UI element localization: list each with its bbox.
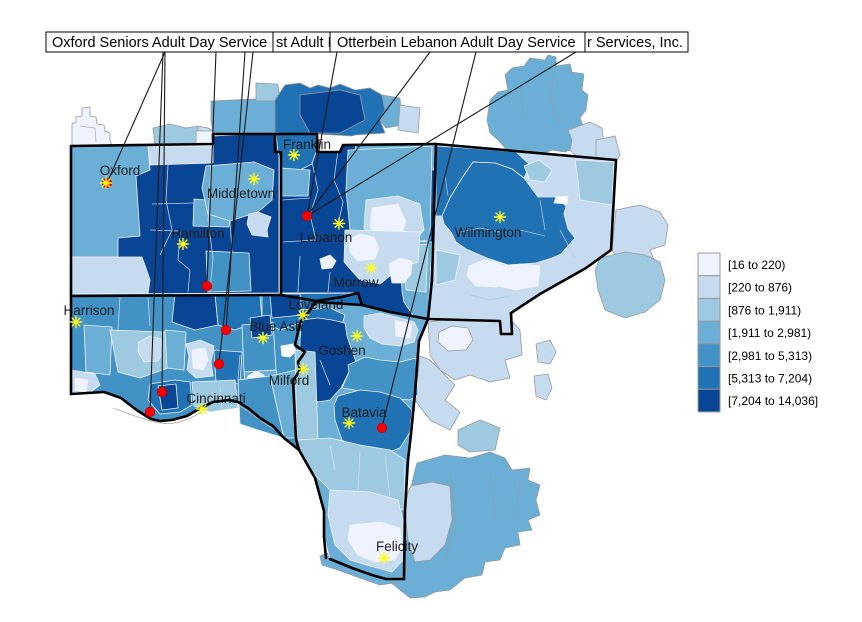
svg-text:Lebanon: Lebanon [300, 230, 353, 245]
svg-text:Franklin: Franklin [283, 137, 331, 152]
svg-text:Cincinnati: Cincinnati [186, 391, 245, 406]
svg-text:Goshen: Goshen [318, 343, 365, 358]
svg-text:Felicity: Felicity [376, 539, 418, 554]
svg-text:Hamilton: Hamilton [171, 226, 224, 241]
svg-text:Oxford Seniors Adult Day Servi: Oxford Seniors Adult Day Service [52, 35, 267, 51]
svg-text:[220 to 876): [220 to 876) [728, 281, 792, 295]
svg-text:Morrow: Morrow [333, 275, 378, 290]
svg-text:Blue Ash: Blue Ash [249, 319, 302, 334]
svg-text:Middletown: Middletown [207, 186, 275, 201]
svg-text:Otterbein Lebanon Adult Day Se: Otterbein Lebanon Adult Day Service [337, 35, 576, 51]
svg-text:[7,204 to 14,036]: [7,204 to 14,036] [728, 394, 818, 408]
svg-text:[2,981 to 5,313): [2,981 to 5,313) [728, 349, 812, 363]
svg-text:[876 to 1,911): [876 to 1,911) [728, 303, 801, 317]
svg-text:st Adult D: st Adult D [276, 35, 338, 51]
svg-text:r Services, Inc.: r Services, Inc. [587, 35, 683, 51]
svg-text:[1,911 to 2,981): [1,911 to 2,981) [728, 326, 811, 340]
svg-text:Oxford: Oxford [100, 163, 141, 178]
svg-text:[5,313 to 7,204): [5,313 to 7,204) [728, 372, 812, 386]
svg-text:[16 to 220): [16 to 220) [728, 258, 785, 272]
svg-text:Wilmington: Wilmington [455, 225, 522, 240]
